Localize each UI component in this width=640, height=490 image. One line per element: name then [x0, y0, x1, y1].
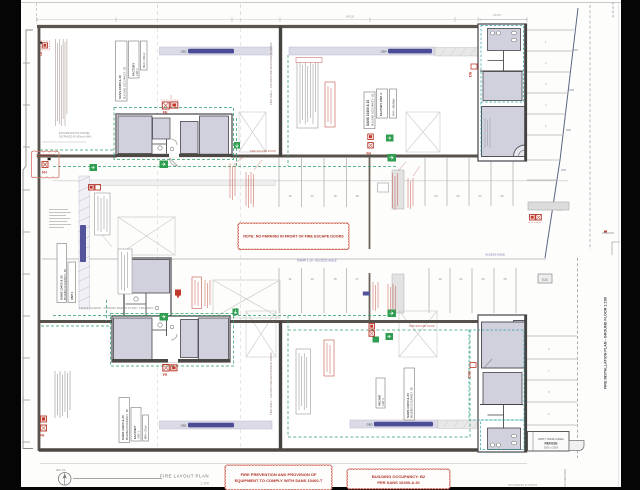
svg-text:15: 15	[333, 277, 337, 281]
svg-text:REFUSE: REFUSE	[545, 442, 558, 446]
svg-text:FIRE WALL - 120 MIN FIRE RESIS: FIRE WALL - 120 MIN FIRE RESISTANCE BRIC…	[269, 352, 273, 415]
svg-text:SANS 10400 & 20: SANS 10400 & 20	[60, 275, 64, 300]
svg-text:RAMP 1:10 - ACCESS AISLE: RAMP 1:10 - ACCESS AISLE	[297, 259, 336, 263]
svg-text:E30: E30	[542, 278, 548, 282]
svg-text:ACCESS AISLE: ACCESS AISLE	[485, 253, 505, 257]
svg-text:BUILDING OCCUPANCY - B2: BUILDING OCCUPANCY - B2	[372, 93, 375, 126]
svg-text:10170: 10170	[493, 13, 501, 17]
svg-text:MFA = 396.96m²: MFA = 396.96m²	[393, 98, 396, 116]
svg-text:SANS 10400 & 20: SANS 10400 & 20	[366, 100, 370, 126]
svg-text:GR. FL.: GR. FL.	[56, 468, 67, 472]
svg-text:DB1: DB1	[181, 423, 187, 427]
svg-text:UNIT 3: UNIT 3	[382, 398, 385, 406]
svg-text:1:100: 1:100	[200, 482, 209, 486]
svg-text:UNIT 1: UNIT 1	[138, 431, 141, 439]
svg-text:MFA = 391m²: MFA = 391m²	[142, 52, 146, 68]
svg-text:14: 14	[310, 194, 314, 198]
svg-text:DB4: DB4	[381, 49, 387, 53]
svg-text:22: 22	[456, 194, 460, 198]
svg-text:SANS 10400 & 20: SANS 10400 & 20	[118, 75, 122, 99]
svg-text:DISTANCE 45 000mm MAX: DISTANCE 45 000mm MAX	[59, 134, 92, 138]
svg-text:FIRE WALL - 120 MIN FIRE RESIS: FIRE WALL - 120 MIN FIRE RESISTANCE BRIC…	[269, 42, 273, 105]
svg-text:NO PARKING IN FRONT: NO PARKING IN FRONT	[508, 483, 537, 487]
svg-text:SANS 10400 & 20: SANS 10400 & 20	[406, 393, 410, 418]
svg-text:FH: FH	[39, 52, 43, 56]
svg-text:NOTE: NO PARKING IN FRONT OF F: NOTE: NO PARKING IN FRONT OF FIRE ESCAPE…	[243, 235, 344, 239]
svg-text:26: 26	[500, 194, 504, 198]
svg-text:16: 16	[333, 194, 337, 198]
svg-text:23: 23	[481, 277, 485, 281]
svg-text:DB3: DB3	[367, 422, 373, 426]
svg-text:D8: D8	[468, 71, 473, 77]
svg-text:BUILDING OCCUPANCY - B2: BUILDING OCCUPANCY - B2	[64, 268, 67, 300]
svg-text:17: 17	[355, 277, 359, 281]
svg-text:FACTORY: FACTORY	[132, 63, 136, 76]
svg-text:19: 19	[438, 277, 442, 281]
svg-text:FE: FE	[163, 111, 168, 115]
svg-text:FIRE PREVENTION AND PROVISION: FIRE PREVENTION AND PROVISION OF	[241, 472, 317, 477]
svg-text:FH: FH	[367, 152, 372, 156]
svg-text:FACTORY: FACTORY	[133, 426, 137, 439]
svg-text:SANS 10400 & 20: SANS 10400 & 20	[121, 415, 125, 440]
svg-text:PER SANS 10400-A 20: PER SANS 10400-A 20	[377, 480, 420, 485]
svg-text:FH: FH	[42, 171, 47, 175]
svg-text:MFA = 391m²: MFA = 391m²	[145, 425, 148, 439]
svg-text:24120: 24120	[346, 15, 355, 19]
svg-text:UNIT 1: UNIT 1	[70, 291, 74, 300]
svg-text:FH: FH	[40, 434, 45, 438]
svg-text:13: 13	[310, 277, 314, 281]
svg-text:3000 x 2000: 3000 x 2000	[544, 446, 559, 450]
svg-text:12: 12	[288, 194, 292, 198]
svg-text:21: 21	[459, 277, 463, 281]
svg-text:FIRE ESCAPE DOOR: FIRE ESCAPE DOOR	[409, 324, 435, 328]
svg-text:DB2: DB2	[181, 49, 187, 53]
svg-text:24: 24	[478, 194, 482, 198]
svg-text:25: 25	[503, 277, 507, 281]
svg-text:EQUIPMENT TO COMPLY WITH SANS: EQUIPMENT TO COMPLY WITH SANS 10400-T	[235, 478, 323, 483]
svg-text:11: 11	[288, 277, 291, 281]
svg-text:BUILDING OCCUPANCY - B2: BUILDING OCCUPANCY - B2	[411, 386, 414, 418]
svg-text:18: 18	[355, 194, 359, 198]
svg-text:FIRE LAYOUT PLAN: FIRE LAYOUT PLAN	[160, 474, 209, 479]
svg-text:FIRE ESCAPE DOOR: FIRE ESCAPE DOOR	[250, 149, 276, 153]
svg-text:20: 20	[434, 194, 438, 198]
svg-text:UNIT 2: UNIT 2	[136, 68, 139, 76]
svg-text:BUILDING OCCUPANCY - B2: BUILDING OCCUPANCY - B2	[126, 408, 129, 440]
svg-text:FIRE INSTALLATION PLAN - GRO: FIRE INSTALLATION PLAN - GROUND FLOOR 1:…	[604, 297, 608, 389]
svg-text:D10: D10	[467, 370, 472, 378]
svg-text:TRUCK ACCESS - TURNING RADIUS: TRUCK ACCESS - TURNING RADIUS 10 500 - T…	[79, 306, 154, 310]
svg-text:BUILDING OCCUPANCY - B2: BUILDING OCCUPANCY - B2	[124, 66, 127, 99]
svg-text:DIRTY WASH AREA: DIRTY WASH AREA	[538, 437, 564, 441]
svg-text:AS INDICATED: AS INDICATED	[563, 469, 567, 487]
svg-text:FE: FE	[163, 373, 168, 377]
svg-text:FACTORY UNIT 4: FACTORY UNIT 4	[379, 93, 383, 116]
svg-text:BUILDING OCCUPANCY: B2: BUILDING OCCUPANCY: B2	[372, 474, 426, 479]
